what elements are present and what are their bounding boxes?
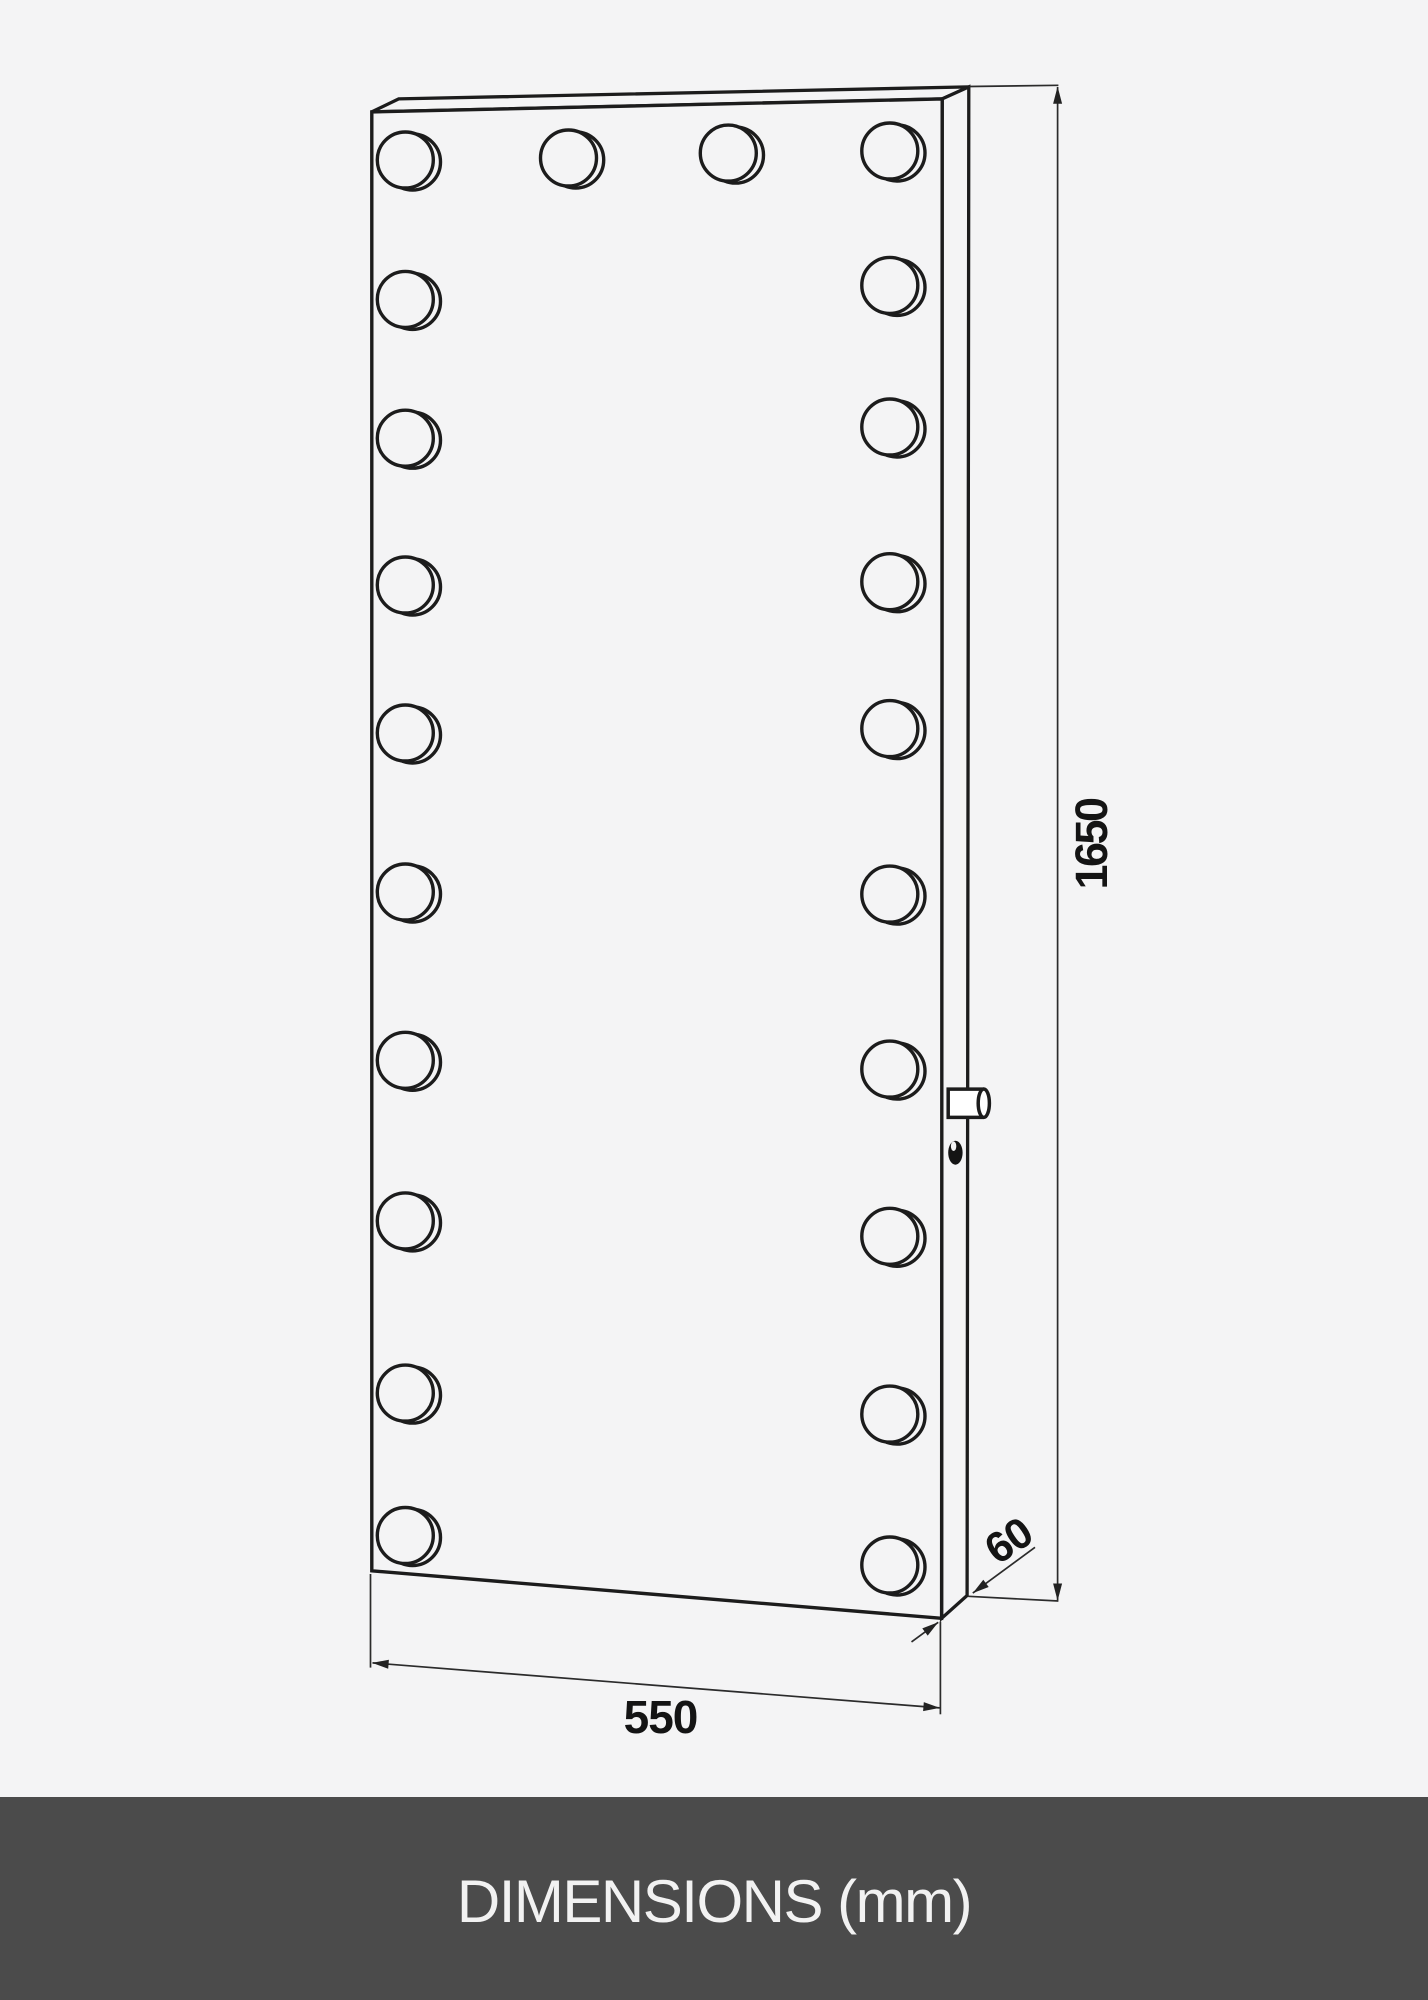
svg-text:550: 550	[624, 1691, 698, 1743]
svg-text:1650: 1650	[1066, 798, 1117, 890]
svg-text:DIMENSIONS (mm): DIMENSIONS (mm)	[457, 1868, 971, 1935]
